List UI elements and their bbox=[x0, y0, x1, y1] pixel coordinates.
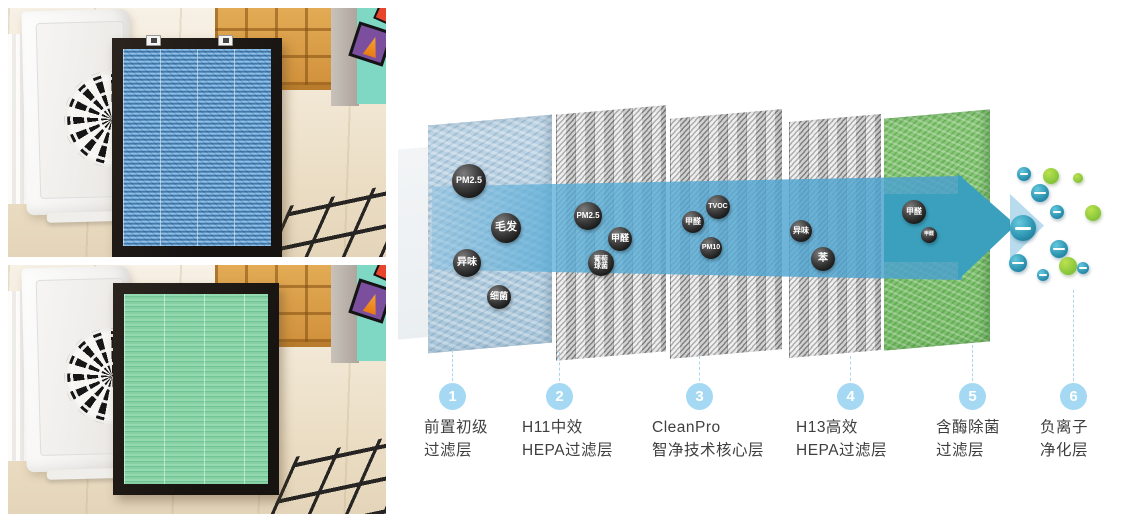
pollutant-particle: 甲醛 bbox=[902, 200, 926, 224]
minus-icon bbox=[1020, 173, 1029, 175]
pollutant-particle: TVOC bbox=[706, 195, 730, 219]
step-circle-1: 1 bbox=[439, 383, 466, 410]
step-circle-4: 4 bbox=[837, 383, 864, 410]
minus-icon bbox=[1012, 262, 1023, 264]
pollutant-particle: PM10 bbox=[700, 237, 722, 259]
product-detail-image: PM2.5毛发异味细菌PM2.5甲醛葡萄 球菌TVOC甲醛PM10异味苯甲醛甲醛… bbox=[0, 0, 1123, 524]
step-label-line: HEPA过滤层 bbox=[796, 439, 887, 462]
connector-dash-1 bbox=[452, 345, 453, 381]
clean-air-particle bbox=[1085, 205, 1101, 221]
step-label-line: CleanPro bbox=[652, 416, 764, 439]
connector-dash-2 bbox=[559, 352, 560, 381]
pollutant-particle: 异味 bbox=[790, 220, 812, 242]
clean-air-particle bbox=[1059, 257, 1077, 275]
step-label-line: 负离子 bbox=[1040, 416, 1088, 439]
pollutant-particle: PM2.5 bbox=[574, 202, 602, 230]
negative-ion bbox=[1077, 262, 1089, 274]
step-label-line: HEPA过滤层 bbox=[522, 439, 613, 462]
negative-ion bbox=[1050, 205, 1064, 219]
negative-ion bbox=[1037, 269, 1049, 281]
step-label-line: H13高效 bbox=[796, 416, 887, 439]
step-label-h13: H13高效 HEPA过滤层 bbox=[796, 416, 887, 462]
negative-ion bbox=[1050, 240, 1068, 258]
step-label-line: 过滤层 bbox=[936, 439, 1000, 462]
minus-icon bbox=[1039, 274, 1046, 276]
minus-icon bbox=[1053, 248, 1064, 250]
step-label-anion: 负离子 净化层 bbox=[1040, 416, 1088, 462]
step-circle-2: 2 bbox=[546, 383, 573, 410]
pollutant-particle: 甲醛 bbox=[608, 227, 632, 251]
step-label-line: 智净技术核心层 bbox=[652, 439, 764, 462]
clean-air-particle bbox=[1073, 173, 1083, 183]
minus-icon bbox=[1015, 227, 1031, 230]
step-label-h11: H11中效 HEPA过滤层 bbox=[522, 416, 613, 462]
step-circle-3: 3 bbox=[686, 383, 713, 410]
pollutant-particle: 甲醛 bbox=[682, 211, 704, 233]
step-label-line: 过滤层 bbox=[424, 439, 488, 462]
filtration-diagram: PM2.5毛发异味细菌PM2.5甲醛葡萄 球菌TVOC甲醛PM10异味苯甲醛甲醛… bbox=[0, 0, 1123, 524]
pollutant-particle: 异味 bbox=[453, 249, 481, 277]
minus-icon bbox=[1079, 267, 1086, 269]
step-label-line: 净化层 bbox=[1040, 439, 1088, 462]
negative-ion bbox=[1031, 184, 1049, 202]
pollutant-particle: PM2.5 bbox=[452, 164, 486, 198]
pollutant-particle: 甲醛 bbox=[921, 227, 937, 243]
connector-dash-3 bbox=[699, 356, 700, 381]
step-circle-5: 5 bbox=[959, 383, 986, 410]
connector-dash-5 bbox=[972, 345, 973, 381]
step-label-line: H11中效 bbox=[522, 416, 613, 439]
clean-air-particle bbox=[1043, 168, 1059, 184]
negative-ion bbox=[1009, 254, 1027, 272]
minus-icon bbox=[1053, 211, 1062, 213]
pollutant-particle: 细菌 bbox=[487, 285, 511, 309]
step-label-line: 含酶除菌 bbox=[936, 416, 1000, 439]
connector-dash-4 bbox=[850, 356, 851, 381]
pollutant-particle: 苯 bbox=[811, 247, 835, 271]
step-label-cleanpro: CleanPro 智净技术核心层 bbox=[652, 416, 764, 462]
connector-dash-6 bbox=[1073, 290, 1074, 381]
step-label-enzyme: 含酶除菌 过滤层 bbox=[936, 416, 1000, 462]
step-label-line: 前置初级 bbox=[424, 416, 488, 439]
negative-ion bbox=[1010, 215, 1036, 241]
minus-icon bbox=[1034, 192, 1045, 194]
step-label-prefilter: 前置初级 过滤层 bbox=[424, 416, 488, 462]
pollutant-particle: 葡萄 球菌 bbox=[588, 250, 614, 276]
step-circle-6: 6 bbox=[1060, 383, 1087, 410]
pollutant-particle: 毛发 bbox=[491, 213, 521, 243]
negative-ion bbox=[1017, 167, 1031, 181]
